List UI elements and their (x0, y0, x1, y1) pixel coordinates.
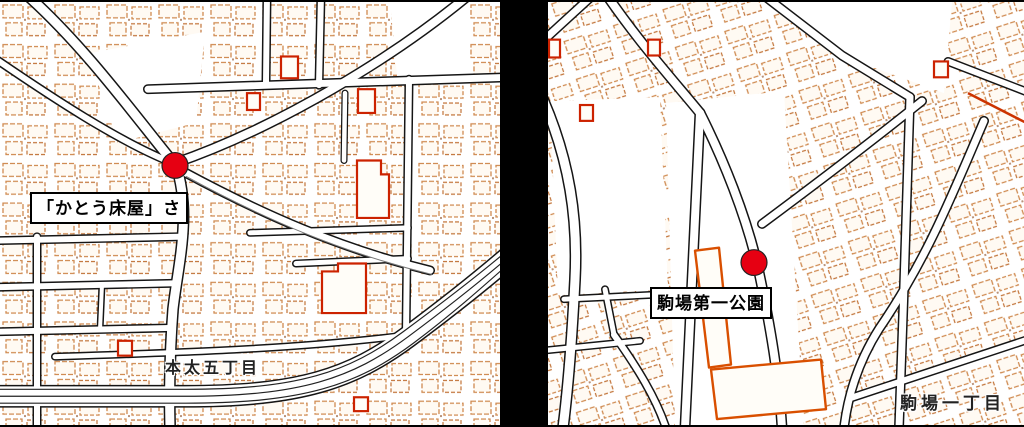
panel-divider (500, 0, 548, 427)
right-map-canvas (548, 2, 1024, 425)
poi-label-left-text: 「かとう床屋」さ (37, 199, 181, 218)
dual-map-view: 「かとう床屋」さ 本太五丁目 (0, 0, 1024, 427)
area-label-left: 本太五丁目 (165, 361, 260, 377)
area-label-right: 駒場一丁目 (900, 395, 1005, 412)
poi-label-right-text: 駒場第一公園 (657, 294, 765, 313)
poi-label-left: 「かとう床屋」さ (30, 192, 188, 224)
map-panel-right[interactable]: 駒場第一公園 駒場一丁目 (548, 2, 1024, 425)
map-marker-left[interactable] (162, 153, 188, 179)
map-panel-left[interactable]: 「かとう床屋」さ 本太五丁目 (0, 2, 500, 425)
map-marker-right[interactable] (741, 250, 767, 276)
poi-label-right: 駒場第一公園 (650, 287, 772, 319)
